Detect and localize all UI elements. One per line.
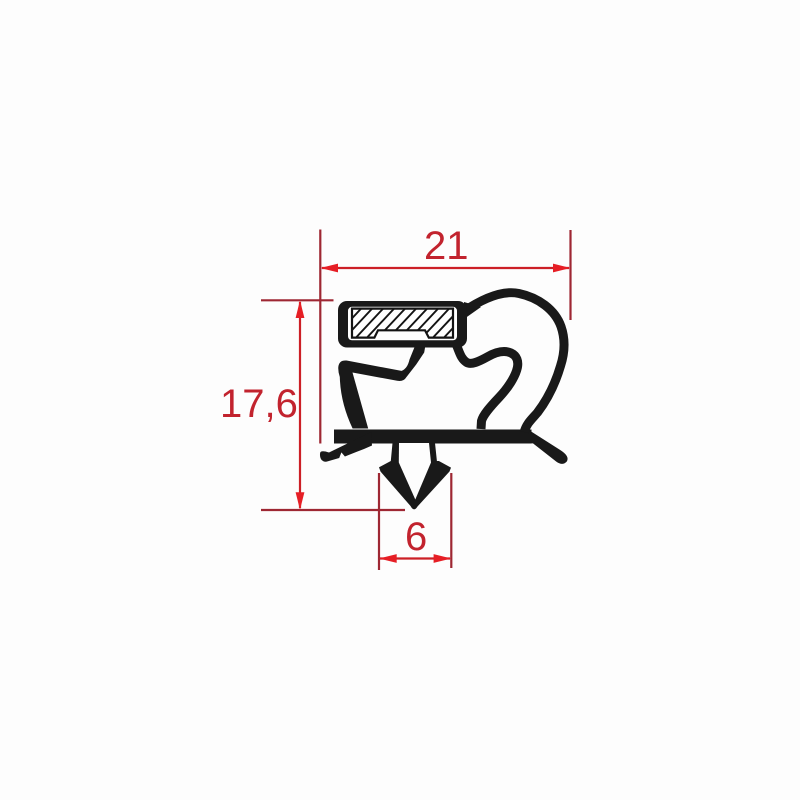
svg-text:21: 21 <box>424 224 469 268</box>
svg-text:6: 6 <box>405 515 427 559</box>
svg-text:17,6: 17,6 <box>220 382 298 426</box>
